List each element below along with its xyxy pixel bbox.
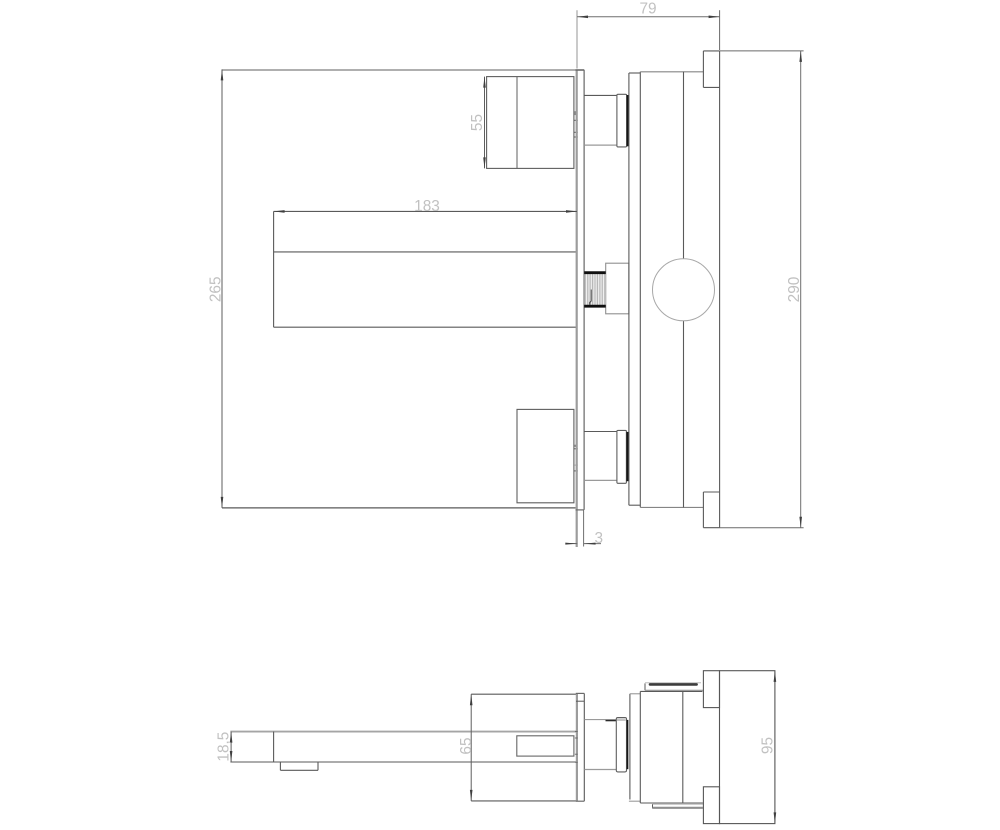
svg-text:18,5: 18,5 xyxy=(215,732,232,762)
svg-text:290: 290 xyxy=(786,277,803,303)
svg-text:79: 79 xyxy=(639,1,656,18)
svg-text:65: 65 xyxy=(458,737,475,754)
svg-text:183: 183 xyxy=(414,198,440,215)
svg-text:3: 3 xyxy=(595,530,604,547)
svg-text:95: 95 xyxy=(759,737,776,754)
svg-text:265: 265 xyxy=(207,276,224,302)
svg-text:55: 55 xyxy=(469,114,486,131)
